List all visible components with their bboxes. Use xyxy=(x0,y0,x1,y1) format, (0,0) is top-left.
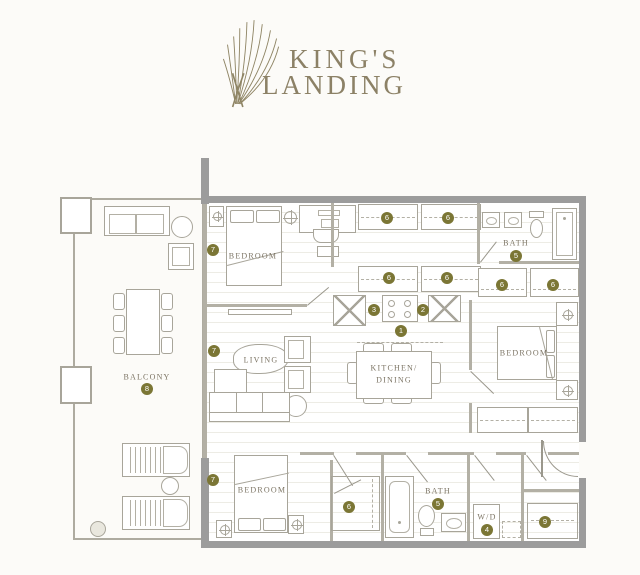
wall-bottom xyxy=(204,541,586,548)
keynote-marker-8: 8 xyxy=(141,383,153,395)
keynote-marker-6: 6 xyxy=(383,272,395,284)
room-label: LIVING xyxy=(244,356,279,365)
balcony-column xyxy=(60,197,92,234)
wall-entry-closet-top xyxy=(521,489,579,492)
toilet xyxy=(530,219,543,238)
wall-bedroom1-right xyxy=(331,203,334,267)
nightstand xyxy=(556,380,578,400)
room-label: W/D xyxy=(477,513,496,522)
armchair xyxy=(284,366,311,393)
refrigerator xyxy=(333,295,366,326)
room-label: BALCONY xyxy=(123,373,170,382)
balcony-chair xyxy=(113,293,125,310)
dresser xyxy=(477,407,528,433)
wall-closet-bath xyxy=(381,452,384,541)
keynote-marker-3: 3 xyxy=(368,304,380,316)
nightstand xyxy=(556,302,578,326)
wall-left-lower xyxy=(201,458,209,548)
room-label: BATH xyxy=(503,239,529,248)
room-label: BEDROOM xyxy=(500,349,548,358)
planter xyxy=(90,521,106,537)
outdoor-sofa xyxy=(104,206,170,236)
outdoor-round-table xyxy=(171,216,193,238)
wall-stub-top-left xyxy=(201,158,209,204)
bathtub xyxy=(385,476,414,538)
toilet-tank xyxy=(420,528,434,536)
wall-bath-wd xyxy=(467,452,470,541)
armchair xyxy=(284,336,311,363)
bathroom-sink xyxy=(482,212,500,228)
balcony-chair xyxy=(161,293,173,310)
toilet xyxy=(418,505,435,527)
nightstand xyxy=(209,206,224,227)
wall-top xyxy=(204,196,586,203)
wall-bath1-left xyxy=(477,203,480,264)
keynote-marker-9: 9 xyxy=(539,516,551,528)
shelf xyxy=(502,521,521,538)
keynote-marker-7: 7 xyxy=(208,345,220,357)
closet xyxy=(331,476,380,531)
balcony-chair xyxy=(113,337,125,354)
lamp-icon xyxy=(284,211,297,224)
kitchen-sink xyxy=(428,295,461,322)
keynote-marker-6: 6 xyxy=(441,272,453,284)
bench xyxy=(317,246,339,257)
keynote-marker-5: 5 xyxy=(432,498,444,510)
wall-corridor xyxy=(300,452,334,455)
bed xyxy=(226,206,282,286)
keynote-marker-1: 1 xyxy=(395,325,407,337)
room-label: BEDROOM xyxy=(238,486,286,495)
balcony-dining-table xyxy=(126,289,160,355)
wall-balcony-window xyxy=(203,204,207,458)
room-label: BATH xyxy=(425,487,451,496)
keynote-marker-6: 6 xyxy=(547,279,559,291)
keynote-marker-5: 5 xyxy=(510,250,522,262)
nightstand xyxy=(288,515,304,534)
balcony-chair xyxy=(113,315,125,332)
tv-console xyxy=(228,309,292,315)
lounge-chair xyxy=(122,443,190,477)
room-label: KITCHEN/ xyxy=(371,364,418,373)
outdoor-small-table xyxy=(161,477,179,495)
keynote-marker-2: 2 xyxy=(417,304,429,316)
keynote-marker-7: 7 xyxy=(207,474,219,486)
balcony-column xyxy=(60,366,92,404)
keynote-marker-6: 6 xyxy=(496,279,508,291)
bathroom-sink xyxy=(441,513,466,532)
balcony-chair xyxy=(161,315,173,332)
wall-bedroom1-bottom xyxy=(207,304,307,307)
keynote-marker-4: 4 xyxy=(481,524,493,536)
keynote-marker-6: 6 xyxy=(343,501,355,513)
desk-chair xyxy=(313,229,339,243)
dresser xyxy=(528,407,578,433)
wall-bedroom-right-a xyxy=(469,300,472,370)
wall-bedroom-right-b xyxy=(469,403,472,433)
outdoor-side-table xyxy=(168,243,194,270)
room-label: DINING xyxy=(376,376,412,385)
wall-right-upper xyxy=(579,196,586,442)
wall-right-lower xyxy=(579,478,586,548)
toilet-tank xyxy=(529,211,544,218)
balcony-chair xyxy=(161,337,173,354)
keynote-marker-6: 6 xyxy=(442,212,454,224)
shower xyxy=(552,208,577,260)
wall-bath1-bottom xyxy=(499,261,579,264)
sofa xyxy=(209,392,290,422)
entry-closet xyxy=(527,503,578,539)
brand-name-line2: LANDING xyxy=(262,70,406,101)
keynote-marker-7: 7 xyxy=(207,244,219,256)
floor-plan-page: KING'S LANDING xyxy=(0,0,640,575)
keynote-marker-6: 6 xyxy=(381,212,393,224)
nightstand xyxy=(216,520,232,538)
lounge-chair xyxy=(122,496,190,530)
wall-wd-closet xyxy=(521,452,524,541)
stove xyxy=(382,295,418,322)
bathroom-sink xyxy=(504,212,522,228)
room-label: BEDROOM xyxy=(229,252,277,261)
